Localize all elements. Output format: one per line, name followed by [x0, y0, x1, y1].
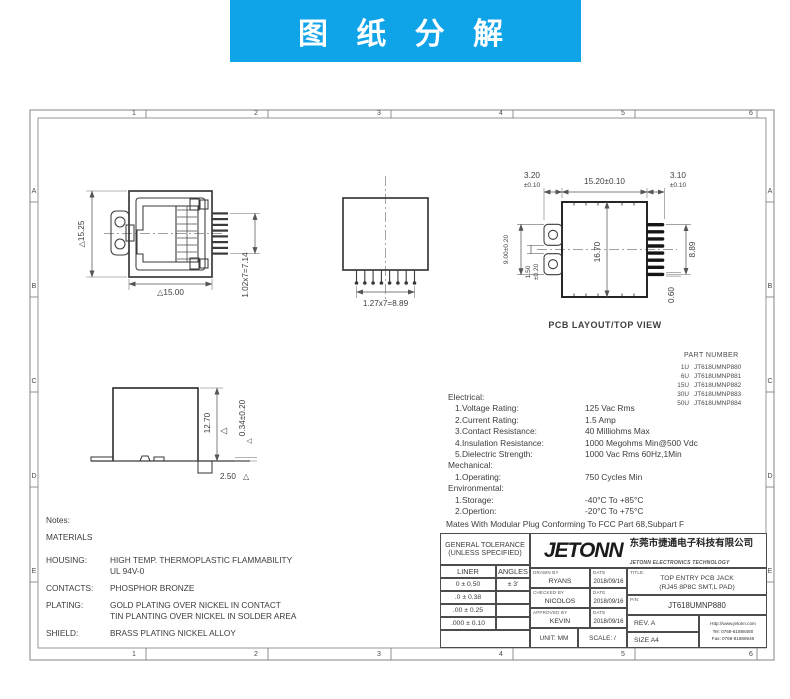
spec-row: 4.Insulation Resistance: 1000 Megohms Mi… — [448, 438, 770, 449]
inspection-triangle-icon: △ — [218, 427, 228, 434]
zone-bottom-4: 4 — [495, 650, 507, 659]
tel: Tel: 0769-81888480 — [710, 629, 756, 636]
zone-bottom-2: 2 — [250, 650, 262, 659]
tolerance-col-liner: LINER — [440, 565, 496, 578]
company-logo: JETONN — [544, 539, 623, 563]
company-name-en: JETONN ELECTRONICS TECHNOLOGY — [630, 560, 730, 566]
tolerance-value: ± 3' — [496, 578, 530, 591]
dim-pcb-right-off: 3.10 — [670, 171, 686, 180]
drawn-by-cell: DRAWN BY RYANS — [530, 568, 590, 588]
dim-pcb-slot-tol: ±0.20 — [533, 263, 540, 280]
zone-top-4: 4 — [495, 109, 507, 118]
spec-row: 5.Dielectric Strength: 1000 Vac Rms 60Hz… — [448, 449, 770, 460]
tolerance-col-angles: ANGLES — [496, 565, 530, 578]
zone-bottom-3: 3 — [373, 650, 385, 659]
dim-pcb-slot: 1.50 — [525, 265, 532, 278]
tolerance-value — [496, 591, 530, 604]
dim-front-pins: 1.02x7=7.14 — [241, 252, 250, 298]
approved-by-cell: APPROVED BY KEVIN — [530, 608, 590, 628]
drawing-sheet: 图 纸 分 解 1 2 3 4 5 6 1 2 3 4 5 6 A B C D … — [0, 0, 790, 699]
zone-bottom-5: 5 — [617, 650, 629, 659]
pcb-layout-drawing: 16.70 3.20 ±0.10 15.20±0.10 3.10 ±0.10 9… — [493, 168, 790, 340]
side-view-drawing: 12.70 0.34±0.20 △ △ 2.50 △ — [85, 373, 280, 491]
tolerance-value — [496, 604, 530, 617]
dim-pcb-left-off: 3.20 — [524, 171, 540, 180]
bottom-view-drawing: 1.27x7=8.89 — [328, 158, 463, 310]
zone-bottom-1: 1 — [128, 650, 140, 659]
zone-left-a: A — [28, 187, 40, 196]
dim-pcb-height: 16.70 — [593, 241, 602, 262]
tolerance-value: .0 ± 0.38 — [440, 591, 496, 604]
tolerance-value: .000 ± 0.10 — [440, 617, 496, 630]
notes-title: Notes: — [46, 514, 376, 526]
zone-top-5: 5 — [617, 109, 629, 118]
dim-pcb-pad-h: 0.60 — [667, 287, 676, 303]
note-row: HOUSING: HIGH TEMP. THERMOPLASTIC FLAMMA… — [46, 555, 376, 577]
zone-left-e: E — [28, 567, 40, 576]
dim-side-pad: 0.34±0.20 — [238, 399, 247, 436]
table-row: 6U JT618UMNP881 — [672, 372, 768, 381]
spec-row: 3.Contact Resistance: 40 Milliohms Max — [448, 426, 770, 437]
zone-left-b: B — [28, 282, 40, 291]
dim-front-width: △15.00 — [157, 288, 184, 297]
table-row: 15U JT618UMNP882 — [672, 381, 768, 390]
dim-pcb-tab-span: 9.00±0.20 — [503, 235, 510, 265]
inspection-triangle-icon: △ — [243, 472, 250, 481]
unit-cell: UNIT: MM — [530, 628, 578, 648]
checked-date-cell: DATE 2018/09/16 — [590, 588, 627, 608]
inspection-triangle-icon: △ — [246, 438, 253, 444]
part-number-title: PART NUMBER — [684, 352, 768, 359]
dim-pcb-pad-span: 8.89 — [688, 241, 697, 257]
dim-front-height: △15.25 — [77, 220, 86, 247]
spec-footer: Mates With Modular Plug Conforming To FC… — [446, 518, 770, 530]
spec-row: 2.Opertion: -20°C To +75°C — [448, 506, 770, 517]
zone-top-1: 1 — [128, 109, 140, 118]
dim-pcb-width: 15.20±0.10 — [584, 177, 625, 186]
fax: Fax: 0769-81888946 — [710, 636, 756, 643]
spec-row: 2.Current Rating: 1.5 Amp — [448, 415, 770, 426]
pcb-view-label: PCB LAYOUT/TOP VIEW — [548, 320, 661, 330]
tolerance-header: GENERAL TOLERANCE (UNLESS SPECIFIED) — [440, 533, 530, 565]
zone-top-6: 6 — [745, 109, 757, 118]
note-row: CONTACTS: PHOSPHOR BRONZE — [46, 583, 376, 594]
drawing-title-line1: TOP ENTRY PCB JACK — [660, 575, 734, 582]
spec-section: Environmental: — [448, 483, 770, 494]
zone-bottom-6: 6 — [745, 650, 757, 659]
checked-by-cell: CHECKED BY NICOLOS — [530, 588, 590, 608]
scale-cell: SCALE: / — [578, 628, 627, 648]
part-number-value: JT618UMNP880 — [628, 601, 766, 610]
table-row: 1U JT618UMNP880 — [672, 363, 768, 372]
front-view-drawing: △15.25 △15.00 1.02x7=7.14 — [70, 163, 335, 331]
notes-subtitle: MATERIALS — [46, 531, 376, 543]
pn-cell: P/N: JT618UMNP880 — [627, 595, 767, 615]
approved-date-cell: DATE 2018/09/16 — [590, 608, 627, 628]
contact-cell: Http://www.jetonn.com Tel: 0769-81888480… — [699, 615, 767, 648]
company-header: JETONN 东莞市捷通电子科技有限公司 JETONN ELECTRONICS … — [530, 533, 767, 568]
rev-cell: REV. A — [627, 615, 699, 632]
tolerance-value: 0 ± 0.50 — [440, 578, 496, 591]
tolerance-value: .00 ± 0.25 — [440, 604, 496, 617]
notes-block: Notes: MATERIALS HOUSING: HIGH TEMP. THE… — [46, 514, 376, 639]
spec-section: Electrical: — [448, 392, 770, 403]
title-cell: TITLE: TOP ENTRY PCB JACK (RJ45 8P8C SMT… — [627, 568, 767, 595]
note-row: SHIELD: BRASS PLATING NICKEL ALLOY — [46, 628, 376, 639]
spec-list: Electrical: 1.Voltage Rating: 125 Vac Rm… — [448, 392, 770, 530]
drawn-date-cell: DATE 2018/09/16 — [590, 568, 627, 588]
size-cell: SIZE A4 — [627, 632, 699, 648]
dim-side-foot: 2.50 — [220, 472, 236, 481]
zone-top-2: 2 — [250, 109, 262, 118]
spec-row: 1.Storage: -40°C To +85°C — [448, 495, 770, 506]
dim-pcb-left-tol: ±0.10 — [524, 182, 541, 189]
title-block: GENERAL TOLERANCE (UNLESS SPECIFIED) LIN… — [440, 533, 767, 648]
tolerance-value — [496, 617, 530, 630]
dim-bottom-pitch: 1.27x7=8.89 — [363, 299, 409, 308]
spec-section: Mechanical: — [448, 460, 770, 471]
dim-side-height: 12.70 — [203, 412, 212, 433]
spec-row: 1.Operating: 750 Cycles Min — [448, 472, 770, 483]
website: Http://www.jetonn.com — [710, 621, 756, 628]
note-row: PLATING: GOLD PLATING OVER NICKEL IN CON… — [46, 600, 376, 622]
zone-left-c: C — [28, 377, 40, 386]
tolerance-empty — [440, 630, 530, 648]
spec-row: 1.Voltage Rating: 125 Vac Rms — [448, 403, 770, 414]
drawing-title-line2: (RJ45 8P8C SMT,L PAD) — [659, 584, 735, 591]
zone-top-3: 3 — [373, 109, 385, 118]
zone-left-d: D — [28, 472, 40, 481]
dim-pcb-right-tol: ±0.10 — [670, 182, 687, 189]
company-name-cn: 东莞市捷通电子科技有限公司 — [630, 538, 754, 549]
